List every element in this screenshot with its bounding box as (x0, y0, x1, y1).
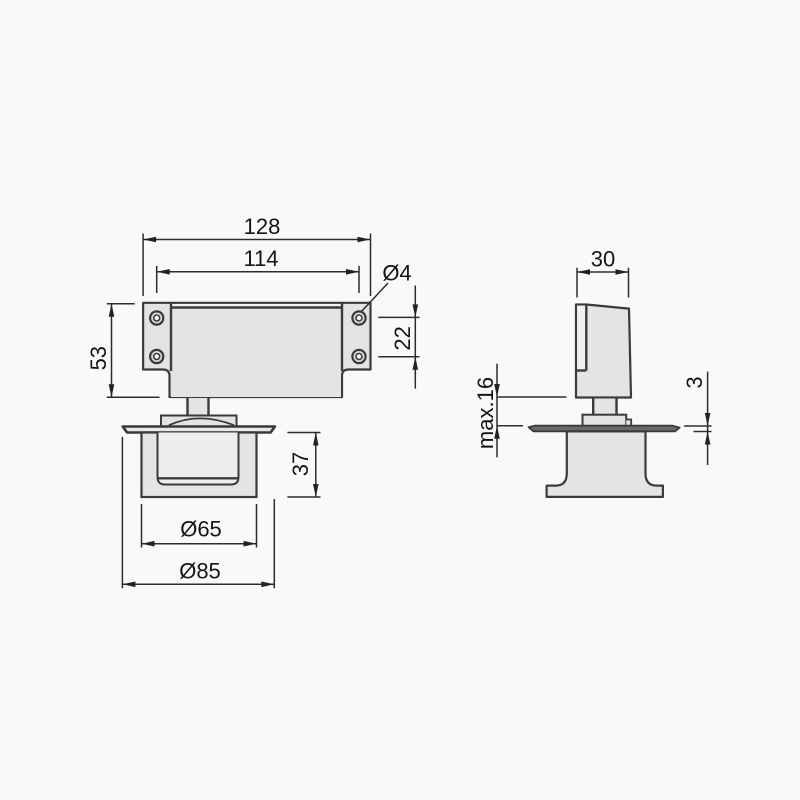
svg-text:53: 53 (86, 346, 111, 370)
svg-text:Ø65: Ø65 (180, 517, 222, 542)
svg-text:128: 128 (244, 214, 281, 239)
svg-text:114: 114 (243, 246, 278, 271)
svg-text:max.16: max.16 (473, 377, 498, 449)
svg-text:37: 37 (288, 452, 313, 476)
svg-text:Ø4: Ø4 (382, 261, 411, 286)
svg-text:30: 30 (591, 247, 615, 272)
svg-text:3: 3 (682, 376, 707, 388)
svg-text:Ø85: Ø85 (179, 559, 221, 584)
svg-text:22: 22 (390, 326, 415, 350)
